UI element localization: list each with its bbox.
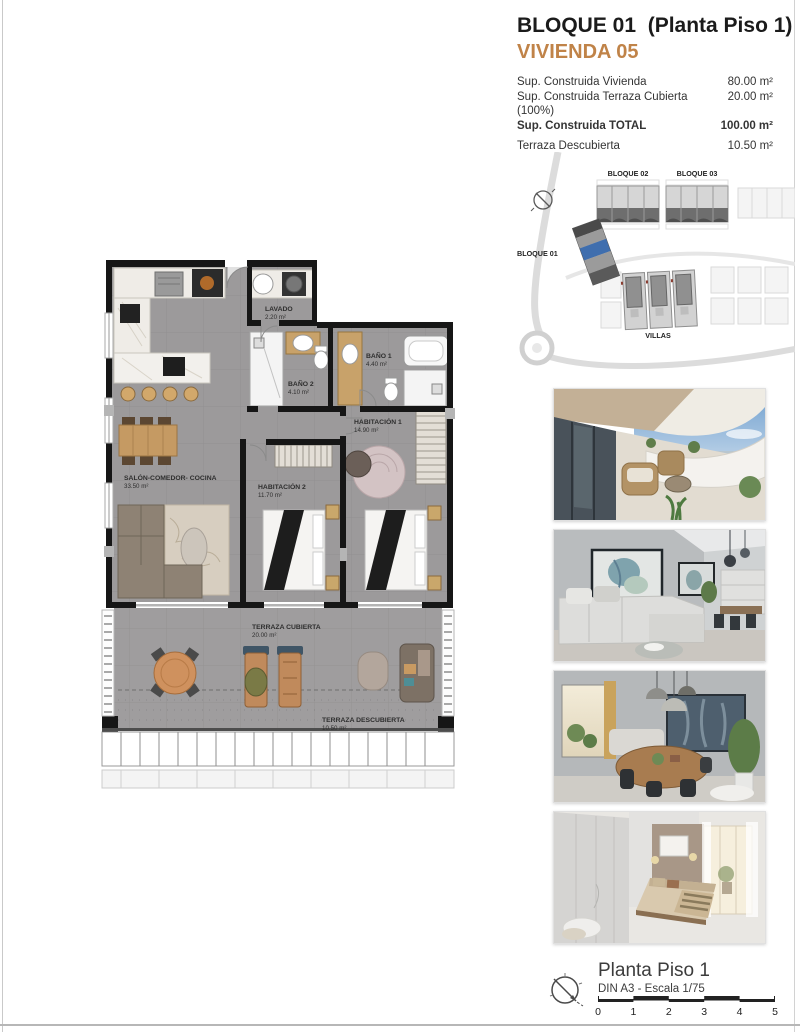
label-bloque-02: BLOQUE 02 (608, 169, 649, 178)
footer-plan-title: Planta Piso 1 (598, 960, 710, 982)
room-area: 4.40 m² (366, 361, 387, 368)
header: BLOQUE 01 (Planta Piso 1) VIVIENDA 05 Su… (517, 14, 773, 154)
room-area: 20.00 m² (252, 632, 276, 639)
site-block-02 (597, 180, 659, 229)
bathroom-fixtures (249, 270, 448, 406)
area-value: 100.00 m² (721, 119, 773, 134)
room-area: 2.20 m² (265, 314, 286, 321)
page-border-left (2, 0, 3, 1032)
photo-bedroom (553, 811, 766, 944)
area-row-total: Sup. Construida TOTAL 100.00 m² (517, 119, 773, 134)
photo-terrace-view (553, 388, 766, 521)
scale-tick: 1 (630, 1006, 636, 1018)
photo-living-room (553, 529, 766, 662)
room-label: TERRAZA DESCUBIERTA (322, 717, 405, 724)
room-area: 11.70 m² (258, 492, 282, 499)
scale-tick: 5 (772, 1006, 778, 1018)
scale-tick: 2 (666, 1006, 672, 1018)
living-furniture (118, 505, 229, 598)
area-row: Sup. Construida Terraza Cubierta (100%) … (517, 90, 773, 119)
label-villas: VILLAS (645, 331, 671, 340)
page-border-bottom (0, 1024, 800, 1026)
room-label: LAVADO (265, 306, 293, 313)
area-label: Sup. Construida Vivienda (517, 75, 647, 90)
photo-dining-area (553, 670, 766, 803)
scale-tick: 4 (737, 1006, 743, 1018)
room-area: 10.50 m² (322, 725, 346, 732)
area-label: Sup. Construida TOTAL (517, 119, 646, 134)
dining-set (119, 417, 177, 465)
room-label: TERRAZA CUBIERTA (252, 624, 321, 631)
area-value: 80.00 m² (728, 75, 773, 90)
page-title: BLOQUE 01 (Planta Piso 1) (517, 14, 773, 38)
label-bloque-01: BLOQUE 01 (517, 249, 558, 258)
scale-numbers: 0 1 2 3 4 5 (595, 1006, 778, 1018)
label-bloque-03: BLOQUE 03 (677, 169, 718, 178)
scale-tick: 3 (701, 1006, 707, 1018)
site-plan: BLOQUE 02 BLOQUE 03 BLOQUE 01 VILLAS (506, 152, 795, 387)
room-label: HABITACIÓN 1 (354, 417, 402, 426)
room-area: 33.50 m² (124, 483, 148, 490)
floor-plan: LAVADO 2.20 m² BAÑO 2 4.10 m² BAÑO 1 4.4… (92, 258, 464, 793)
room-label: SALÓN-COMEDOR- COCINA (124, 473, 217, 482)
scale-tick: 0 (595, 1006, 601, 1018)
room-area: 4.10 m² (288, 389, 309, 396)
unit-subtitle: VIVIENDA 05 (517, 41, 773, 64)
compass-icon (546, 970, 586, 1010)
site-villas (620, 270, 697, 330)
plan-sheet-page: { "header": { "title": "BLOQUE 01 (Plant… (0, 0, 800, 1032)
room-label: HABITACIÓN 2 (258, 482, 306, 491)
area-row: Sup. Construida Vivienda 80.00 m² (517, 75, 773, 90)
area-table: Sup. Construida Vivienda 80.00 m² Sup. C… (517, 75, 773, 154)
site-block-03 (666, 180, 728, 229)
room-label: BAÑO 1 (366, 351, 392, 360)
area-value: 20.00 m² (728, 90, 773, 119)
room-label: BAÑO 2 (288, 379, 314, 388)
area-label: Sup. Construida Terraza Cubierta (100%) (517, 90, 728, 119)
scale-bar: 0 1 2 3 4 5 (592, 991, 788, 1019)
room-area: 14.90 m² (354, 427, 378, 434)
